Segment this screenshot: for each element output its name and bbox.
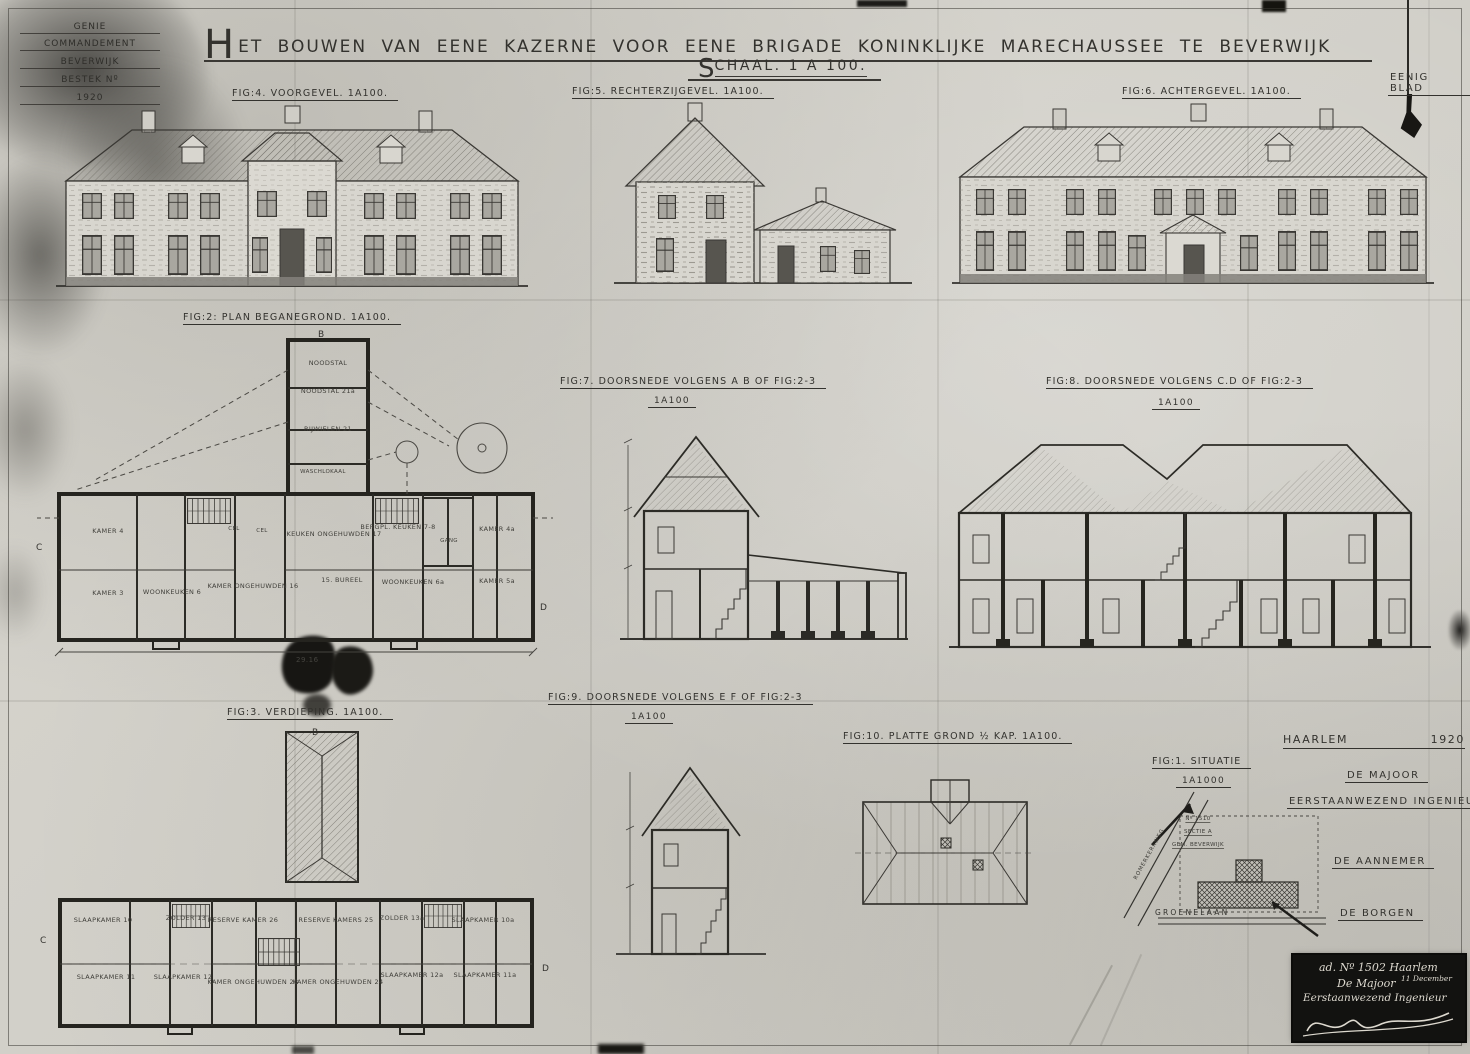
room-label: NOODSTAL [309, 359, 348, 367]
room-label: SLAAPKAMER 11a [454, 971, 517, 979]
room-label: KAMER 4a [479, 525, 515, 533]
room-label: WOONKEUKEN 6a [382, 578, 445, 586]
street-label-bottom: GROENELAAN [1155, 908, 1229, 917]
parcel-number: Nº 1510 [1185, 816, 1210, 823]
parcel-sectie: SECTIE A [1184, 829, 1212, 836]
scale-initial: S [698, 61, 715, 77]
fig6-achtergevel-drawing [948, 103, 1438, 293]
corner-stamp-line: BESTEK Nº [20, 75, 160, 87]
caption-fig5: FIG:5. RECHTERZIJGEVEL. 1A100. [572, 86, 774, 99]
caption-fig9: FIG:9. DOORSNEDE VOLGENS E F OF FIG:2-3 [548, 692, 813, 705]
room-label: ZOLDER 13a [380, 914, 425, 922]
room-label: SLAAPKAMER 11 [77, 973, 136, 981]
fig8-doorsnede-cd-drawing [945, 415, 1435, 660]
fig2-beganegrond-drawing [35, 330, 555, 665]
aannemer-label: DE AANNEMER [1332, 856, 1434, 869]
room-label: KAMER ONGEHUWDEN 23 [207, 978, 298, 986]
place-label: HAARLEM [1283, 733, 1348, 746]
stamp-line-3: De Majoor [1337, 977, 1396, 990]
title-text: ET BOUWEN VAN EENE KAZERNE VOOR EENE BRI… [236, 37, 1331, 57]
room-label: GANG [440, 538, 458, 544]
room-label: RESERVE KAMER 26 [208, 916, 278, 924]
edge-mark [598, 1044, 644, 1054]
room-label: WASCHLOKAAL [300, 469, 346, 475]
fig4-voorgevel-drawing [52, 103, 532, 298]
majoor-label: DE MAJOOR [1345, 770, 1428, 783]
room-label: CEL [228, 526, 239, 532]
fig7-doorsnede-ab-drawing [612, 415, 912, 650]
room-label: 15. BUREEL [321, 576, 362, 584]
approval-stamp: ad. Nº 1502 Haarlem 11 December De Majoo… [1293, 955, 1465, 1041]
room-label: NOODSTAL 21a [301, 387, 355, 395]
sheet-note: EENIG BLAD [1388, 72, 1470, 96]
stamp-line-2: 11 December [1401, 974, 1452, 983]
title-initial: H [204, 33, 236, 57]
crease-mark [1069, 965, 1113, 1045]
stamp-line-4: Eerstaanwezend Ingenieur [1303, 992, 1447, 1004]
caption-fig8: FIG:8. DOORSNEDE VOLGENS C.D OF FIG:2-3 [1046, 376, 1313, 389]
room-label: CEL [256, 528, 267, 534]
room-label: RIJWIELEN 21 [304, 425, 352, 433]
borgen-label: DE BORGEN [1338, 908, 1423, 921]
edge-mark [857, 0, 907, 7]
caption-fig7: FIG:7. DOORSNEDE VOLGENS A B OF FIG:2-3 [560, 376, 826, 389]
dimension-label: 29.16 [296, 656, 319, 664]
caption-fig1-scale: 1A1000 [1176, 776, 1231, 788]
caption-fig9-scale: 1A100 [625, 712, 673, 724]
fig10-kapplan-drawing [845, 772, 1045, 932]
place-year-row: HAARLEM 1920 [1283, 733, 1465, 749]
room-label: SLAAPKAMER 12a [381, 971, 444, 979]
room-label: KEUKEN ONGEHUWDEN 17 [287, 530, 382, 538]
caption-fig6: FIG:6. ACHTERGEVEL. 1A100. [1122, 86, 1301, 99]
fig1-situatie-drawing [1122, 790, 1332, 940]
edge-mark [1262, 0, 1286, 12]
room-label: KAMER ONGEHUWDEN 24 [292, 978, 383, 986]
corner-stamp-line: GENIE [20, 22, 160, 34]
fig3-verdieping-drawing [50, 878, 540, 1038]
crease-mark [1100, 954, 1143, 1046]
corner-stamp-line: COMMANDEMENT [20, 39, 160, 51]
room-label: KAMER 4 [92, 527, 123, 535]
blueprint-sheet: GENIE COMMANDEMENT BEVERWIJK BESTEK Nº 1… [0, 0, 1470, 1054]
fig5-rechterzijgevel-drawing [608, 100, 918, 295]
room-label: BERGPL. KEUKEN 7-8 [360, 523, 435, 531]
section-marker-d: D [542, 964, 549, 974]
room-label: ZOLDER 13 [166, 914, 206, 922]
sheet-scale: S CHAAL. 1 A 100. [688, 58, 881, 81]
caption-fig3: FIG:3. VERDIEPING. 1A100. [227, 707, 393, 720]
edge-tear [1448, 610, 1470, 650]
caption-fig7-scale: 1A100 [648, 396, 696, 408]
room-label: KAMER ONGEHUWDEN 16 [207, 582, 298, 590]
caption-fig1: FIG:1. SITUATIE [1152, 756, 1251, 769]
room-label: KAMER 3 [92, 589, 123, 597]
room-label: KAMER 5a [479, 577, 515, 585]
section-marker-d: D [540, 603, 547, 613]
signature-flourish [1299, 1005, 1459, 1039]
caption-fig4: FIG:4. VOORGEVEL. 1A100. [232, 88, 398, 101]
section-marker-b: B [318, 330, 324, 340]
ingenieur-label: EERSTAANWEZEND INGENIEUR [1287, 796, 1470, 809]
room-label: SLAAPKAMER 12 [154, 973, 213, 981]
caption-fig2: FIG:2: PLAN BEGANEGROND. 1A100. [183, 312, 401, 325]
year-label: 1920 [1431, 733, 1465, 746]
parcel-gemeente: GEM. BEVERWIJK [1172, 842, 1224, 849]
caption-fig8-scale: 1A100 [1152, 398, 1200, 410]
fold-line [0, 299, 1470, 301]
room-label: WOONKEUKEN 6 [143, 588, 201, 596]
fig9-doorsnede-ef-drawing [612, 748, 772, 963]
stamp-line-1: ad. Nº 1502 Haarlem [1319, 961, 1438, 974]
section-marker-c: C [36, 543, 42, 553]
room-label: RESERVE KAMERS 25 [299, 916, 374, 924]
section-marker-c: C [40, 936, 46, 946]
caption-fig10: FIG:10. PLATTE GROND ½ KAP. 1A100. [843, 731, 1072, 744]
wing-roofplan-drawing [272, 722, 372, 892]
fold-line [590, 0, 592, 1054]
scale-text: CHAAL. 1 A 100. [715, 58, 868, 77]
room-label: SLAAPKAMER 10a [452, 916, 515, 924]
corner-stamp-line: BEVERWIJK [20, 57, 160, 69]
room-label: SLAAPKAMER 10 [74, 916, 133, 924]
